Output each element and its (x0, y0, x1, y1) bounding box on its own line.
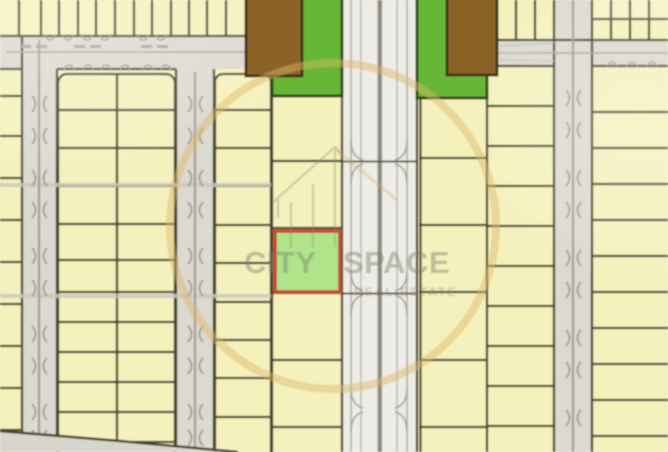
svg-text:REAL ESTATE: REAL ESTATE (354, 285, 457, 299)
svg-text:SPACE: SPACE (343, 245, 450, 280)
svg-text:CITY: CITY (244, 245, 317, 280)
